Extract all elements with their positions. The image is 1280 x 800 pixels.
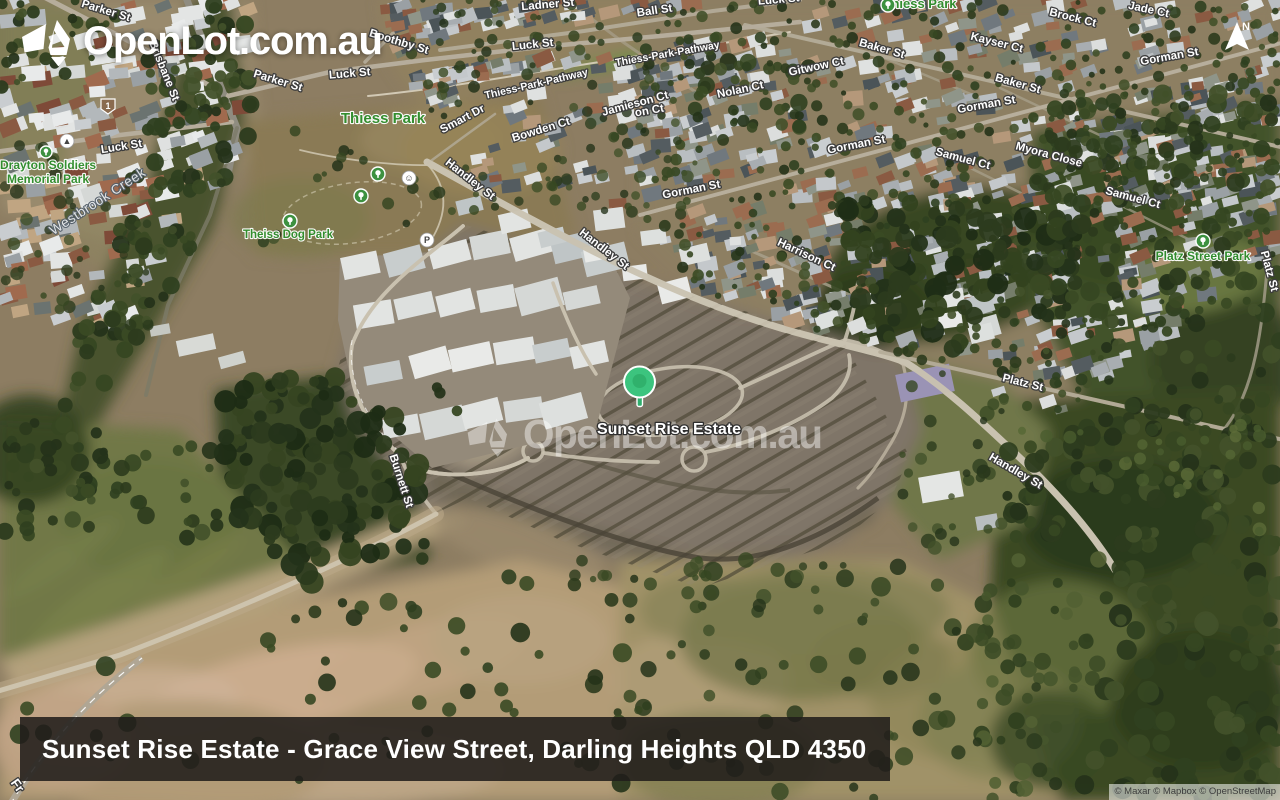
svg-text:Sunset Rise Estate: Sunset Rise Estate: [597, 421, 741, 438]
svg-text:Thiess Park: Thiess Park: [341, 110, 426, 127]
svg-text:1: 1: [105, 101, 110, 111]
svg-text:Theiss Dog Park: Theiss Dog Park: [243, 229, 334, 241]
svg-text:☺: ☺: [404, 173, 413, 183]
svg-text:Platz Street Park: Platz Street Park: [1156, 249, 1251, 263]
svg-text:Drayton Soldiers: Drayton Soldiers: [0, 158, 96, 172]
svg-text:▲: ▲: [63, 136, 72, 146]
svg-text:Memorial Park: Memorial Park: [7, 172, 89, 186]
svg-text:P: P: [424, 235, 430, 245]
svg-text:N: N: [1242, 21, 1250, 33]
